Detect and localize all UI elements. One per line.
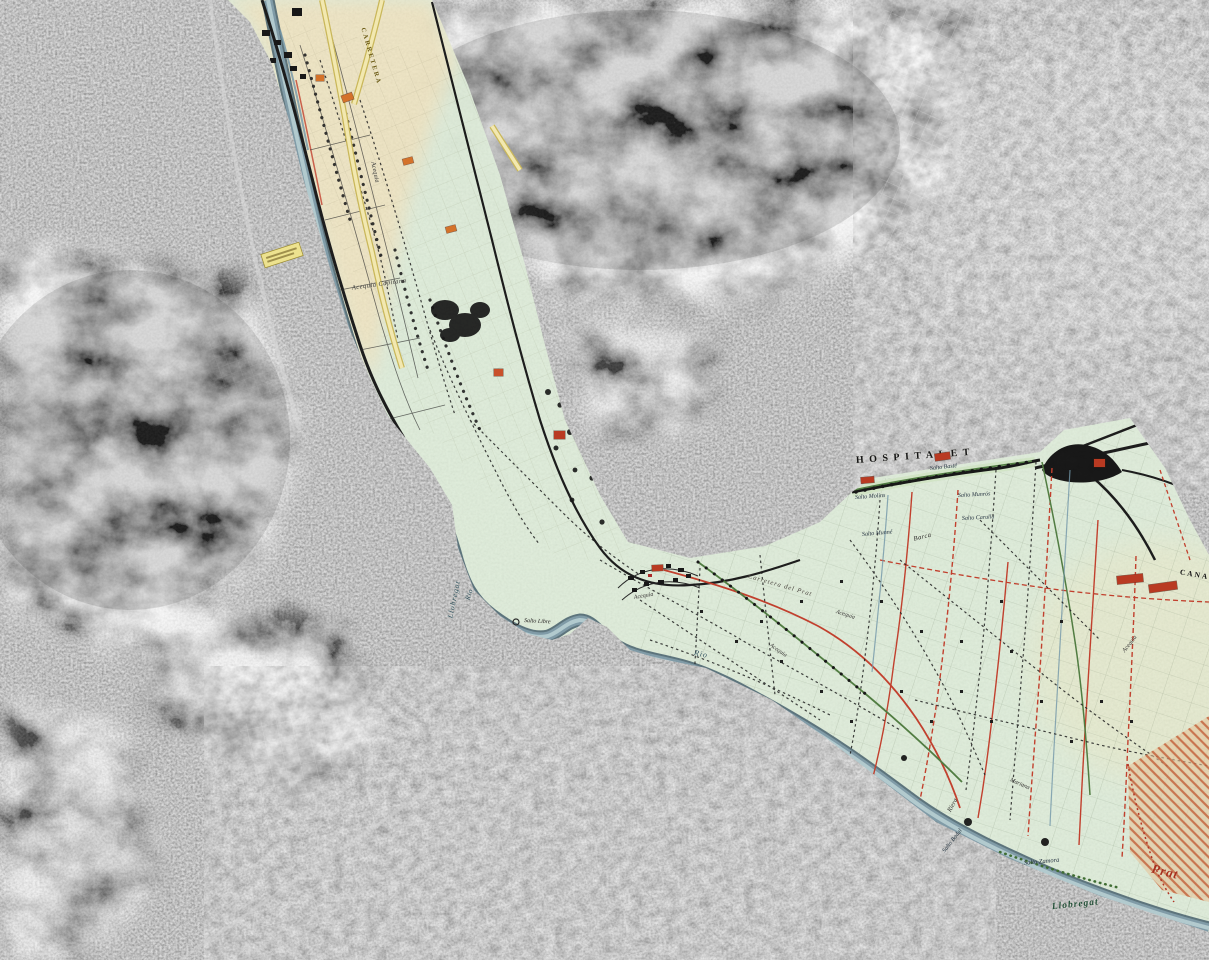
map-viewport: CARRETERAAcequiaAcequia CapitanaLlobrega… [0,0,1209,960]
map-canvas [0,0,1209,960]
